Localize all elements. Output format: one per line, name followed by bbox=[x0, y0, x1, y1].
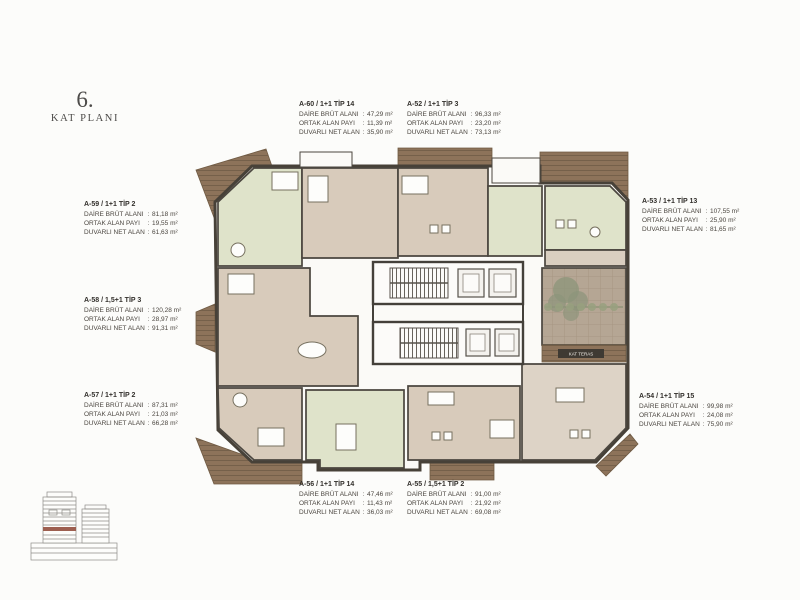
row-value: 120,28 m² bbox=[152, 306, 181, 315]
unit-row-ortak: ORTAK ALAN PAYI:11,43 m² bbox=[299, 499, 417, 508]
row-label: DUVARLI NET ALAN bbox=[299, 128, 360, 137]
row-value: 99,98 m² bbox=[707, 402, 733, 411]
colon: : bbox=[360, 499, 367, 508]
row-label: ORTAK ALAN PAYI bbox=[407, 119, 468, 128]
unit-row-brut: DAİRE BRÜT ALANI:96,33 m² bbox=[407, 110, 525, 119]
row-label: DUVARLI NET ALAN bbox=[84, 419, 145, 428]
unit-row-brut: DAİRE BRÜT ALANI:47,29 m² bbox=[299, 110, 417, 119]
room-a53 bbox=[545, 186, 626, 250]
colon: : bbox=[145, 210, 152, 219]
unit-label-a57: A-57 / 1+1 TİP 2 DAİRE BRÜT ALANI:87,31 … bbox=[84, 391, 202, 428]
row-value: 87,31 m² bbox=[152, 401, 178, 410]
row-value: 35,90 m² bbox=[367, 128, 393, 137]
unit-header: A-59 / 1+1 TİP 2 bbox=[84, 200, 202, 209]
colon: : bbox=[145, 324, 152, 333]
colon: : bbox=[703, 216, 710, 225]
colon: : bbox=[468, 499, 475, 508]
row-value: 23,20 m² bbox=[475, 119, 501, 128]
colon: : bbox=[703, 225, 710, 234]
unit-row-brut: DAİRE BRÜT ALANI:87,31 m² bbox=[84, 401, 202, 410]
row-label: DAİRE BRÜT ALANI bbox=[639, 402, 700, 411]
unit-label-a60: A-60 / 1+1 TİP 14 DAİRE BRÜT ALANI:47,29… bbox=[299, 100, 417, 137]
unit-row-brut: DAİRE BRÜT ALANI:107,55 m² bbox=[642, 207, 760, 216]
room-a53-hall bbox=[545, 250, 626, 266]
row-value: 69,08 m² bbox=[475, 508, 501, 517]
row-label: DUVARLI NET ALAN bbox=[407, 508, 468, 517]
terrace-sign-label: KAT TERAS bbox=[569, 352, 594, 357]
row-label: ORTAK ALAN PAYI bbox=[84, 315, 145, 324]
row-value: 24,08 m² bbox=[707, 411, 733, 420]
unit-row-brut: DAİRE BRÜT ALANI:47,46 m² bbox=[299, 490, 417, 499]
colon: : bbox=[468, 508, 475, 517]
floor-title: 6. KAT PLANI bbox=[50, 88, 120, 124]
unit-row-net: DUVARLI NET ALAN:75,90 m² bbox=[639, 420, 757, 429]
colon: : bbox=[360, 110, 367, 119]
unit-header: A-58 / 1,5+1 TİP 3 bbox=[84, 296, 202, 305]
row-label: DUVARLI NET ALAN bbox=[639, 420, 700, 429]
colon: : bbox=[468, 119, 475, 128]
unit-row-net: DUVARLI NET ALAN:69,08 m² bbox=[407, 508, 525, 517]
unit-label-a53: A-53 / 1+1 TİP 13 DAİRE BRÜT ALANI:107,5… bbox=[642, 197, 760, 234]
row-label: ORTAK ALAN PAYI bbox=[84, 219, 145, 228]
colon: : bbox=[145, 315, 152, 324]
row-value: 36,03 m² bbox=[367, 508, 393, 517]
row-label: DAİRE BRÜT ALANI bbox=[84, 210, 145, 219]
row-value: 73,13 m² bbox=[475, 128, 501, 137]
unit-row-brut: DAİRE BRÜT ALANI:99,98 m² bbox=[639, 402, 757, 411]
row-label: ORTAK ALAN PAYI bbox=[299, 499, 360, 508]
room-a52-green bbox=[488, 186, 542, 256]
unit-header: A-52 / 1+1 TİP 3 bbox=[407, 100, 525, 109]
unit-label-a58: A-58 / 1,5+1 TİP 3 DAİRE BRÜT ALANI:120,… bbox=[84, 296, 202, 333]
row-label: DUVARLI NET ALAN bbox=[84, 324, 145, 333]
row-value: 61,63 m² bbox=[152, 228, 178, 237]
colon: : bbox=[145, 410, 152, 419]
unit-header: A-55 / 1,5+1 TİP 2 bbox=[407, 480, 525, 489]
row-value: 11,39 m² bbox=[367, 119, 392, 128]
unit-row-ortak: ORTAK ALAN PAYI:21,92 m² bbox=[407, 499, 525, 508]
floor-title-label: KAT PLANI bbox=[50, 113, 120, 124]
colon: : bbox=[468, 110, 475, 119]
floor-plan-page: KAT TERAS bbox=[0, 0, 800, 600]
top-closet-right bbox=[492, 158, 540, 183]
row-label: DUVARLI NET ALAN bbox=[642, 225, 703, 234]
unit-row-brut: DAİRE BRÜT ALANI:91,00 m² bbox=[407, 490, 525, 499]
colon: : bbox=[703, 207, 710, 216]
row-label: DUVARLI NET ALAN bbox=[84, 228, 145, 237]
row-label: DUVARLI NET ALAN bbox=[299, 508, 360, 517]
row-value: 75,90 m² bbox=[707, 420, 733, 429]
unit-row-net: DUVARLI NET ALAN:61,63 m² bbox=[84, 228, 202, 237]
row-value: 11,43 m² bbox=[367, 499, 392, 508]
row-value: 96,33 m² bbox=[475, 110, 501, 119]
unit-row-net: DUVARLI NET ALAN:66,28 m² bbox=[84, 419, 202, 428]
unit-label-a56: A-56 / 1+1 TİP 14 DAİRE BRÜT ALANI:47,46… bbox=[299, 480, 417, 517]
row-label: DAİRE BRÜT ALANI bbox=[84, 401, 145, 410]
unit-label-a55: A-55 / 1,5+1 TİP 2 DAİRE BRÜT ALANI:91,0… bbox=[407, 480, 525, 517]
colon: : bbox=[145, 419, 152, 428]
row-value: 66,28 m² bbox=[152, 419, 178, 428]
row-label: DAİRE BRÜT ALANI bbox=[642, 207, 703, 216]
unit-row-ortak: ORTAK ALAN PAYI:24,08 m² bbox=[639, 411, 757, 420]
colon: : bbox=[360, 508, 367, 517]
row-label: DAİRE BRÜT ALANI bbox=[84, 306, 145, 315]
unit-header: A-60 / 1+1 TİP 14 bbox=[299, 100, 417, 109]
unit-header: A-53 / 1+1 TİP 13 bbox=[642, 197, 760, 206]
row-label: ORTAK ALAN PAYI bbox=[299, 119, 360, 128]
row-label: DAİRE BRÜT ALANI bbox=[299, 490, 360, 499]
row-value: 47,46 m² bbox=[367, 490, 393, 499]
unit-row-net: DUVARLI NET ALAN:91,31 m² bbox=[84, 324, 202, 333]
unit-row-net: DUVARLI NET ALAN:73,13 m² bbox=[407, 128, 525, 137]
row-value: 81,18 m² bbox=[152, 210, 178, 219]
unit-label-a59: A-59 / 1+1 TİP 2 DAİRE BRÜT ALANI:81,18 … bbox=[84, 200, 202, 237]
row-value: 91,31 m² bbox=[152, 324, 178, 333]
row-label: ORTAK ALAN PAYI bbox=[639, 411, 700, 420]
unit-row-ortak: ORTAK ALAN PAYI:21,03 m² bbox=[84, 410, 202, 419]
colon: : bbox=[145, 401, 152, 410]
row-value: 47,29 m² bbox=[367, 110, 393, 119]
unit-row-brut: DAİRE BRÜT ALANI:81,18 m² bbox=[84, 210, 202, 219]
row-value: 21,92 m² bbox=[475, 499, 501, 508]
colon: : bbox=[360, 490, 367, 499]
unit-label-a54: A-54 / 1+1 TİP 15 DAİRE BRÜT ALANI:99,98… bbox=[639, 392, 757, 429]
row-label: ORTAK ALAN PAYI bbox=[642, 216, 703, 225]
row-label: DAİRE BRÜT ALANI bbox=[407, 110, 468, 119]
unit-row-net: DUVARLI NET ALAN:35,90 m² bbox=[299, 128, 417, 137]
colon: : bbox=[360, 119, 367, 128]
row-value: 21,03 m² bbox=[152, 410, 178, 419]
row-value: 19,55 m² bbox=[152, 219, 178, 228]
row-value: 28,97 m² bbox=[152, 315, 178, 324]
colon: : bbox=[360, 128, 367, 137]
colon: : bbox=[468, 490, 475, 499]
unit-row-net: DUVARLI NET ALAN:36,03 m² bbox=[299, 508, 417, 517]
terrace: KAT TERAS bbox=[542, 268, 626, 362]
top-closet-left bbox=[300, 152, 352, 167]
building-elevation-icon bbox=[25, 483, 125, 568]
row-value: 81,65 m² bbox=[710, 225, 736, 234]
floor-number: 6. bbox=[50, 88, 120, 112]
row-label: DAİRE BRÜT ALANI bbox=[299, 110, 360, 119]
unit-header: A-54 / 1+1 TİP 15 bbox=[639, 392, 757, 401]
colon: : bbox=[145, 306, 152, 315]
colon: : bbox=[468, 128, 475, 137]
row-label: DUVARLI NET ALAN bbox=[407, 128, 468, 137]
unit-label-a52: A-52 / 1+1 TİP 3 DAİRE BRÜT ALANI:96,33 … bbox=[407, 100, 525, 137]
row-label: ORTAK ALAN PAYI bbox=[84, 410, 145, 419]
colon: : bbox=[700, 402, 707, 411]
unit-row-brut: DAİRE BRÜT ALANI:120,28 m² bbox=[84, 306, 202, 315]
unit-row-ortak: ORTAK ALAN PAYI:23,20 m² bbox=[407, 119, 525, 128]
room-a57 bbox=[218, 388, 302, 460]
unit-row-ortak: ORTAK ALAN PAYI:28,97 m² bbox=[84, 315, 202, 324]
row-value: 25,90 m² bbox=[710, 216, 736, 225]
unit-row-ortak: ORTAK ALAN PAYI:11,39 m² bbox=[299, 119, 417, 128]
row-value: 107,55 m² bbox=[710, 207, 739, 216]
row-label: ORTAK ALAN PAYI bbox=[407, 499, 468, 508]
colon: : bbox=[145, 228, 152, 237]
colon: : bbox=[145, 219, 152, 228]
row-value: 91,00 m² bbox=[475, 490, 501, 499]
unit-row-ortak: ORTAK ALAN PAYI:25,90 m² bbox=[642, 216, 760, 225]
unit-header: A-56 / 1+1 TİP 14 bbox=[299, 480, 417, 489]
colon: : bbox=[700, 411, 707, 420]
unit-row-ortak: ORTAK ALAN PAYI:19,55 m² bbox=[84, 219, 202, 228]
unit-row-net: DUVARLI NET ALAN:81,65 m² bbox=[642, 225, 760, 234]
row-label: DAİRE BRÜT ALANI bbox=[407, 490, 468, 499]
colon: : bbox=[700, 420, 707, 429]
unit-header: A-57 / 1+1 TİP 2 bbox=[84, 391, 202, 400]
